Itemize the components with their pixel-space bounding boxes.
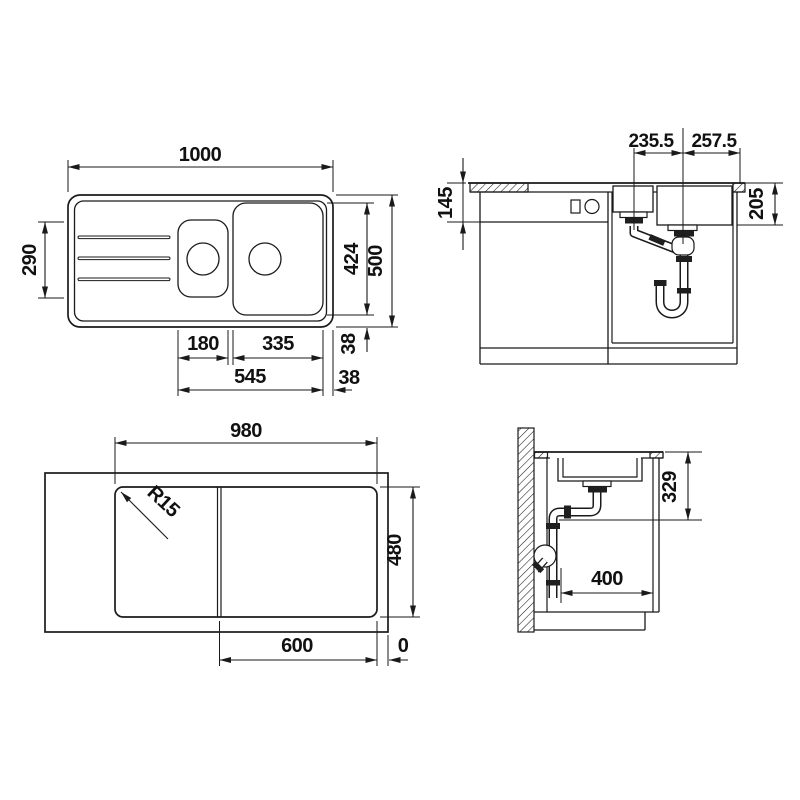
dim-drain-depth: 329: [659, 471, 681, 503]
dim-rim-gap-horizontal: 38: [338, 367, 360, 389]
small-bowl: [178, 220, 228, 297]
dim-small-bowl-width: 180: [187, 333, 219, 355]
cutout-view: 980 R15 480 600 0: [45, 420, 420, 666]
plan-view: 1000 290 424 500 38 180 335 545 38: [19, 144, 398, 396]
dim-overall-depth: 500: [365, 245, 387, 277]
countertop-hatch-right: [733, 183, 745, 192]
trap-cap: [654, 280, 667, 286]
front-dimension-lines: [463, 153, 775, 250]
drainboard-grooves: [78, 236, 170, 281]
cutout-dimension-lines: [115, 443, 413, 660]
technical-drawing-page: 1000 290 424 500 38 180 335 545 38: [0, 0, 800, 800]
sink-inner-rim: [75, 201, 327, 321]
sink-outer-rim: [68, 195, 333, 327]
side-strainer-flange: [583, 481, 611, 487]
counter-hatch-right: [650, 452, 663, 458]
dim-rim-gap-vertical: 38: [338, 333, 360, 355]
countertop-hatch-left: [470, 183, 528, 192]
main-strainer-nut: [674, 231, 694, 237]
dim-clearance-depth: 400: [591, 568, 623, 590]
front-drain-assembly: [620, 212, 697, 314]
pipe-collar: [546, 580, 560, 586]
side-view: 329 400: [518, 428, 702, 632]
dishwasher-knob: [585, 200, 599, 214]
counter-hatch-left: [535, 452, 548, 458]
dim-drainboard-depth: 290: [19, 244, 41, 276]
dim-bowl-zone-height: 424: [341, 242, 363, 275]
small-bowl-section: [613, 186, 653, 212]
front-view: 235.5 257.5 145 205: [435, 128, 783, 364]
pipe-collar: [546, 523, 560, 529]
dim-small-drain-offset: 235.5: [628, 131, 674, 152]
side-strainer-nut: [588, 487, 607, 493]
dim-cutout-depth: 480: [384, 534, 406, 566]
dim-cutout-width: 980: [230, 420, 262, 442]
dishwasher-cabinet: [480, 192, 612, 348]
dim-apron-height: 145: [435, 187, 457, 219]
small-bowl-drain: [187, 243, 219, 275]
dim-bowl-depth: 205: [746, 188, 768, 220]
pipe-collar: [564, 506, 571, 519]
dim-main-bowl-width: 335: [262, 333, 294, 355]
main-bowl: [233, 203, 323, 315]
dim-overall-width: 1000: [179, 144, 222, 166]
dim-main-drain-offset: 257.5: [691, 131, 737, 152]
dim-bowls-span: 545: [234, 366, 266, 388]
dim-edge-offset: 0: [398, 635, 409, 657]
main-bowl-drain: [249, 243, 281, 275]
side-countertop-underside: [534, 452, 663, 458]
pipe-collar: [677, 288, 691, 294]
main-bowl-section: [657, 186, 732, 225]
dishwasher-button: [571, 200, 580, 213]
pipe-collar: [676, 256, 692, 262]
worktop-panel: [45, 473, 388, 632]
dim-cabinet-width: 600: [281, 635, 313, 657]
wall-section: [518, 428, 534, 632]
sink-drawing-canvas: 1000 290 424 500 38 180 335 545 38: [0, 0, 800, 800]
